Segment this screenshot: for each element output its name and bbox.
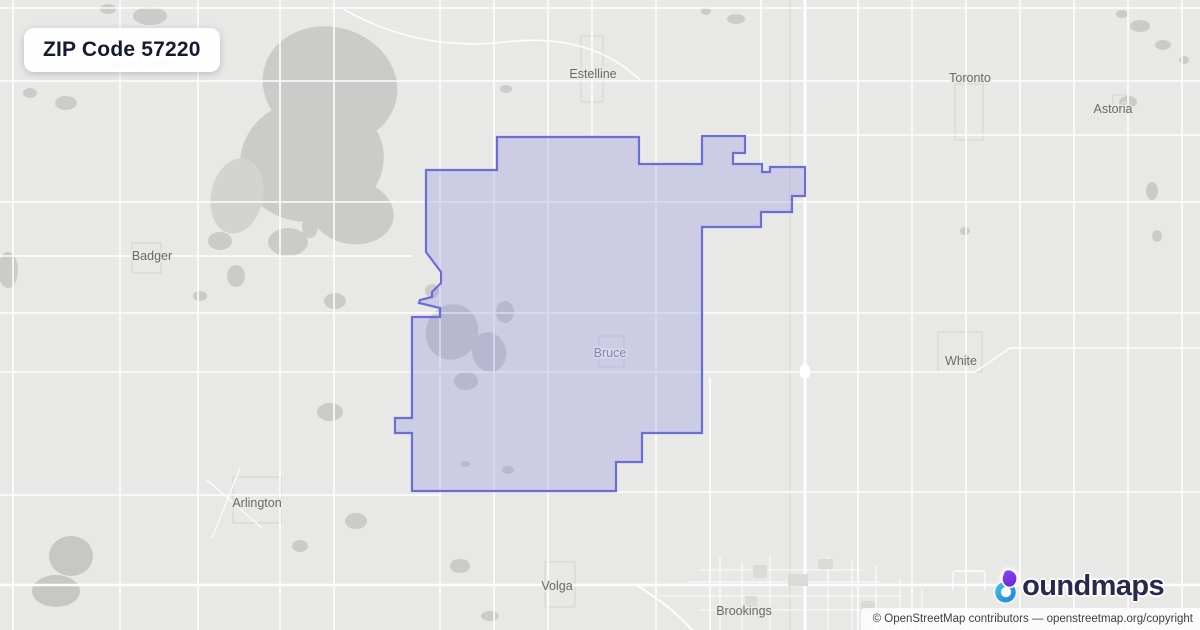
place-label-brookings: Brookings — [716, 604, 772, 618]
water-blob — [208, 232, 232, 250]
map-canvas[interactable]: EstellineTorontoAstoriaBadgerBruceWhiteA… — [0, 0, 1200, 630]
water-blob — [49, 536, 93, 576]
boundmaps-logo[interactable]: oundmaps — [993, 569, 1164, 604]
map-share-card: EstellineTorontoAstoriaBadgerBruceWhiteA… — [0, 0, 1200, 630]
water-blob — [1152, 230, 1162, 242]
water-blob — [100, 4, 116, 14]
urban-block — [753, 565, 767, 578]
place-label-bruce: Bruce — [594, 346, 627, 360]
boundmaps-logo-text: oundmaps — [1022, 570, 1164, 603]
water-blob — [1116, 10, 1128, 18]
osm-attribution-link[interactable]: © OpenStreetMap contributors — openstree… — [873, 613, 1193, 625]
water-blob — [450, 559, 470, 573]
water-blob — [292, 540, 308, 552]
place-label-estelline: Estelline — [569, 67, 616, 81]
water-blob — [727, 14, 745, 24]
place-label-volga: Volga — [541, 579, 572, 593]
water-blob — [302, 214, 318, 238]
osm-attribution: © OpenStreetMap contributors — openstree… — [861, 608, 1200, 630]
zip-title-badge: ZIP Code 57220 — [24, 28, 220, 72]
water-blob — [960, 227, 970, 235]
water-blob — [317, 403, 343, 421]
water-blob — [1179, 56, 1189, 64]
water-blob — [1155, 40, 1171, 50]
water-blob — [32, 575, 80, 607]
urban-block — [788, 574, 808, 586]
place-label-arlington: Arlington — [232, 496, 281, 510]
water-blob — [23, 88, 37, 98]
place-label-white: White — [945, 354, 977, 368]
water-blob — [227, 265, 245, 287]
boundmaps-logo-icon — [993, 569, 1020, 604]
water-blob — [1146, 182, 1158, 200]
water-blob — [268, 228, 308, 256]
water-blob — [133, 7, 167, 25]
water-blob — [345, 513, 367, 529]
water-blob — [481, 611, 499, 621]
urban-block — [818, 559, 833, 569]
place-label-toronto: Toronto — [949, 71, 991, 85]
place-label-astoria: Astoria — [1094, 102, 1133, 116]
water-blob — [324, 293, 346, 309]
water-blob — [55, 96, 77, 110]
water-blob — [193, 291, 207, 301]
urban-block — [800, 364, 810, 379]
water-blob — [1130, 20, 1150, 32]
zip-title: ZIP Code 57220 — [43, 38, 201, 62]
water-blob — [500, 85, 512, 93]
place-label-badger: Badger — [132, 249, 172, 263]
